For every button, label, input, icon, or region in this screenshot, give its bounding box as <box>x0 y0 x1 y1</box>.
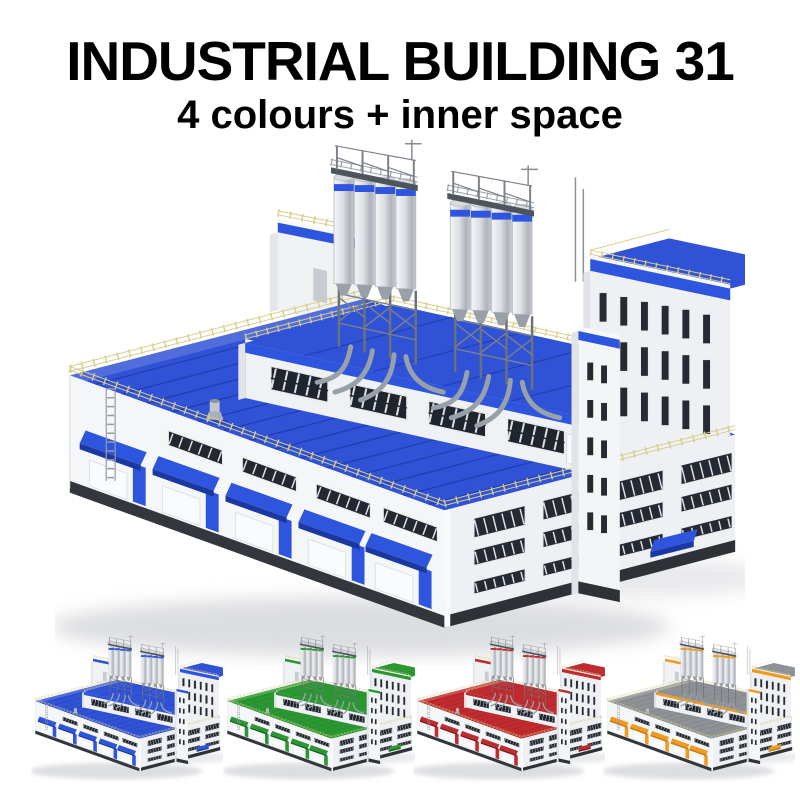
header: INDUSTRIAL BUILDING 31 4 colours + inner… <box>0 0 800 135</box>
factory-illustration-variant <box>31 634 223 782</box>
variant-thumbnail-green <box>223 634 415 782</box>
factory-illustration-main <box>55 130 745 670</box>
variant-thumbnail-grey-orange <box>603 634 795 782</box>
main-product-render <box>55 130 745 670</box>
colour-variant-row <box>0 634 800 794</box>
factory-illustration-variant <box>603 634 795 782</box>
page-subtitle: 4 colours + inner space <box>0 89 800 135</box>
factory-illustration-variant <box>413 634 605 782</box>
variant-thumbnail-red <box>413 634 605 782</box>
page-title: INDUSTRIAL BUILDING 31 <box>0 0 800 89</box>
variant-thumbnail-blue <box>31 634 223 782</box>
factory-illustration-variant <box>223 634 415 782</box>
